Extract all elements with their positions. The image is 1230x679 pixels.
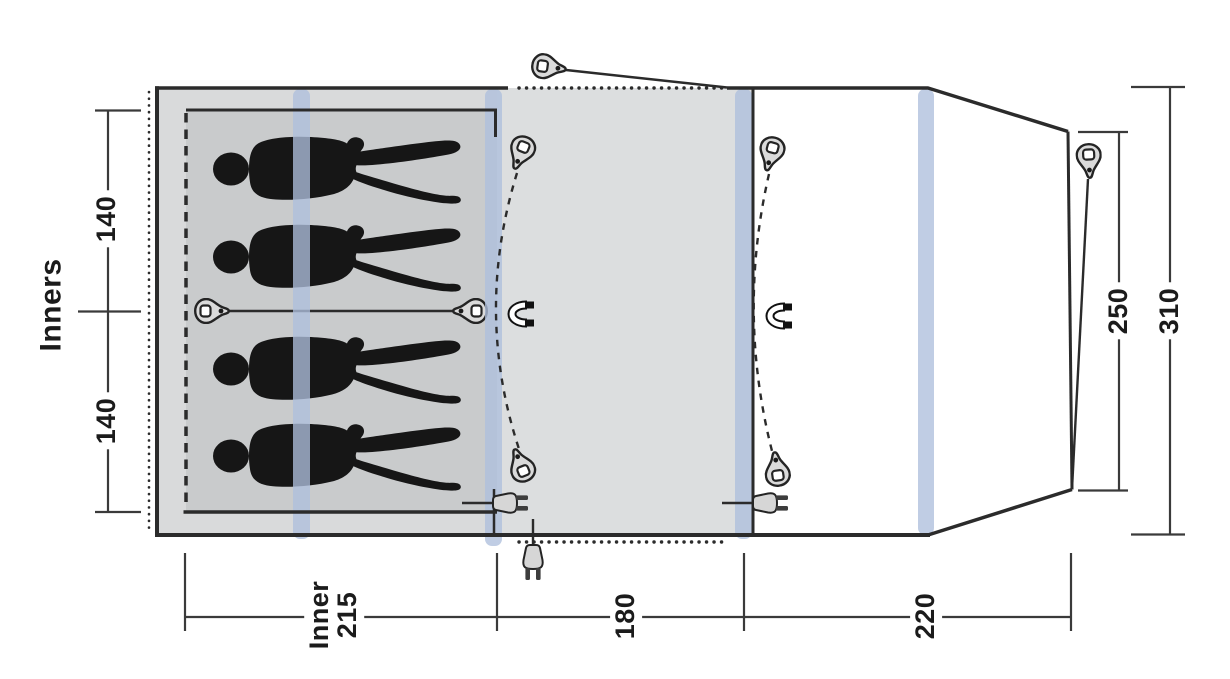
inners-label: Inners: [35, 253, 70, 356]
dim-label-living-depth: 180: [610, 588, 642, 645]
tent-floorplan: Inners 140 140 Inner 215 180 220 250 310: [0, 0, 1230, 679]
power-plug-icon: [523, 545, 542, 580]
guy-line: [1072, 179, 1088, 489]
guy-peg-icon: [1076, 144, 1102, 179]
dim-label-porch-width-outer: 310: [1154, 283, 1186, 340]
dim-label-porch-depth: 220: [910, 588, 942, 645]
dim-label-inner-depth-value: 215: [334, 581, 362, 650]
dim-label-inner-depth-word: Inner: [306, 581, 334, 650]
floorplan-svg: [0, 0, 1230, 679]
dim-label-inner-width-bottom: 140: [91, 393, 123, 450]
guy-peg-icon: [531, 53, 568, 81]
guy-line: [566, 70, 727, 88]
dim-label-porch-width-inner: 250: [1103, 283, 1135, 340]
air-pole-stripe: [735, 89, 752, 539]
dim-label-inner-depth: Inner 215: [304, 576, 364, 655]
section-front-porch: [753, 88, 1072, 535]
air-pole-stripe: [293, 89, 310, 539]
dim-label-inner-width-top: 140: [91, 191, 123, 248]
air-pole-stripe: [918, 89, 934, 535]
air-pole-stripe: [485, 89, 502, 546]
